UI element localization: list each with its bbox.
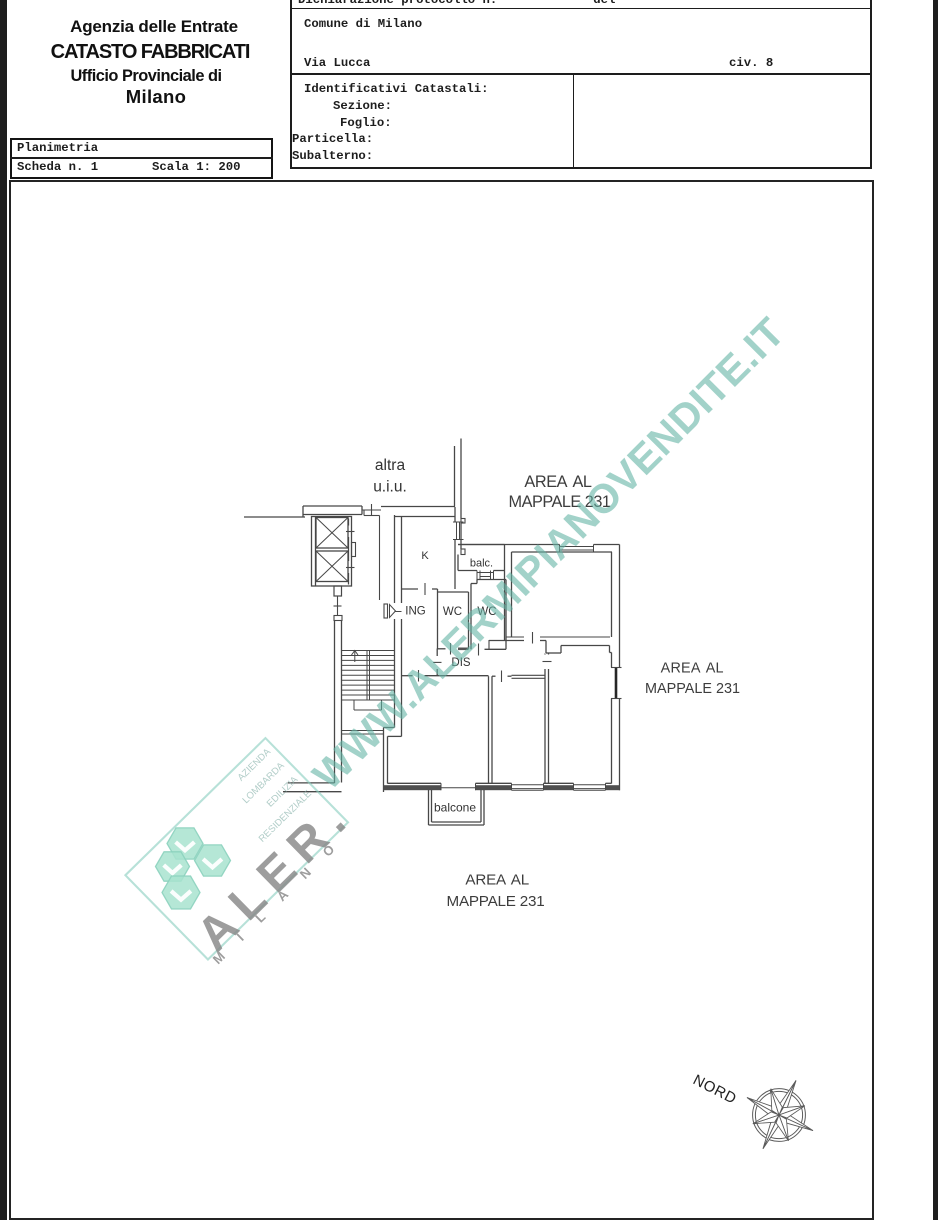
- svg-text:altra: altra: [375, 457, 406, 474]
- svg-text:AREA AL: AREA AL: [465, 871, 529, 888]
- svg-text:balc.: balc.: [470, 558, 493, 570]
- svg-text:NORD: NORD: [690, 1071, 739, 1107]
- svg-text:u.i.u.: u.i.u.: [373, 479, 407, 496]
- svg-text:MAPPALE 231: MAPPALE 231: [645, 681, 740, 697]
- svg-text:ING: ING: [405, 606, 426, 618]
- svg-text:MAPPALE 231: MAPPALE 231: [447, 893, 545, 910]
- svg-text:AREA AL: AREA AL: [661, 661, 724, 677]
- svg-text:balcone: balcone: [434, 801, 476, 815]
- svg-text:K: K: [421, 550, 429, 562]
